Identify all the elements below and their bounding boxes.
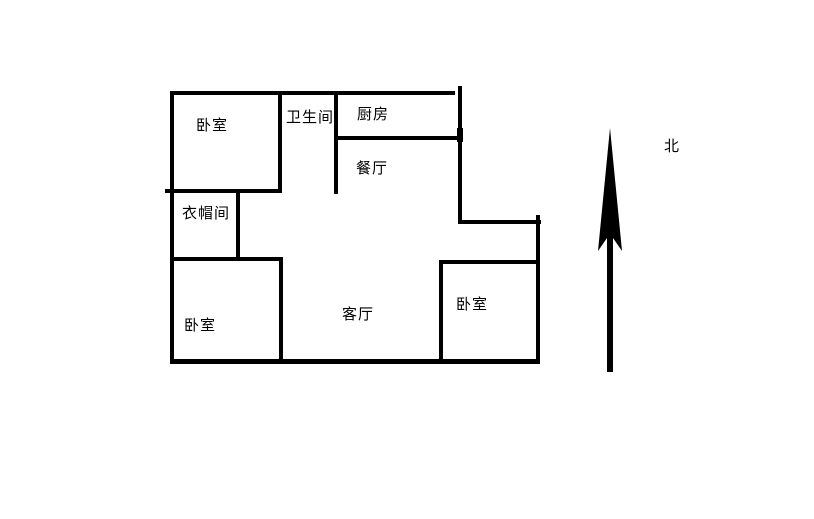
wall-bedroom-southeast-top [439, 260, 539, 264]
room-label-bedroom-north: 卧室 [196, 118, 228, 134]
wall-bedroom-north-right [278, 91, 282, 193]
room-label-bedroom-southeast: 卧室 [456, 297, 488, 313]
room-label-cloakroom: 衣帽间 [182, 206, 230, 222]
room-label-living-room: 客厅 [342, 307, 374, 323]
room-label-kitchen: 厨房 [357, 107, 389, 123]
floor-plan: 卧室 卫生间 厨房 餐厅 衣帽间 卧室 客厅 卧室 北 [0, 0, 814, 519]
wall-bathroom-right [334, 91, 338, 194]
wall-bedroom-north-bottom [165, 189, 282, 193]
wall-cloakroom-right [236, 190, 240, 260]
wall-bedroom-southeast-left [439, 260, 443, 363]
north-arrow-icon [590, 120, 630, 380]
wall-bedroom-southwest-right [279, 257, 283, 363]
room-label-bathroom: 卫生间 [286, 110, 334, 126]
wall-kitchen-door-mark [457, 128, 463, 142]
room-label-bedroom-southwest: 卧室 [184, 318, 216, 334]
wall-kitchen-dining-right [458, 86, 462, 224]
north-label: 北 [664, 139, 680, 155]
room-label-dining-room: 餐厅 [356, 161, 388, 177]
north-arrow-shape [598, 128, 622, 372]
wall-left-outer [170, 91, 174, 363]
wall-top-outer [170, 91, 455, 95]
wall-dining-southeast-top [458, 220, 541, 224]
wall-bottom-outer [170, 359, 540, 364]
wall-kitchen-bottom [336, 136, 461, 140]
wall-bedroom-southwest-top [171, 257, 283, 261]
wall-right-outer [536, 215, 540, 363]
